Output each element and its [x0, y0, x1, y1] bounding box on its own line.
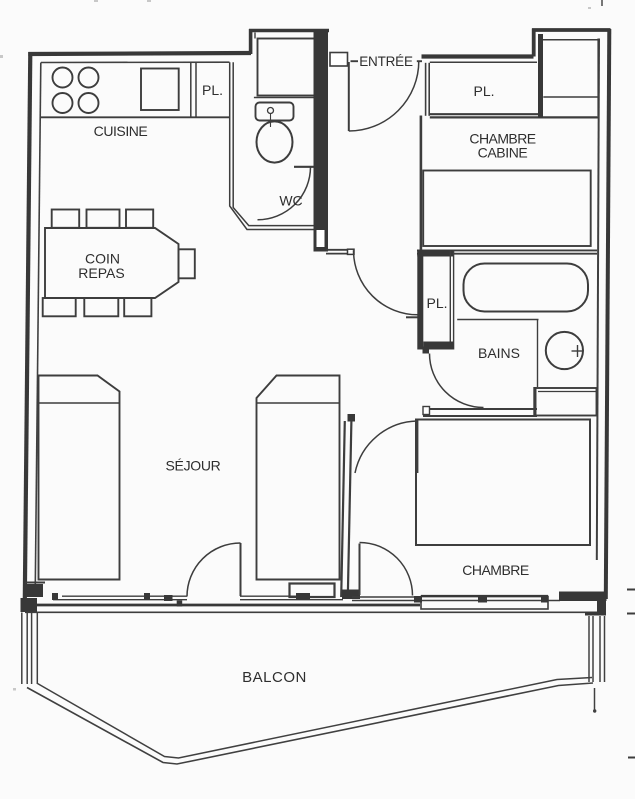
svg-text:PL.: PL.: [426, 295, 447, 311]
svg-text:SÉJOUR: SÉJOUR: [166, 458, 221, 474]
svg-text:REPAS: REPAS: [78, 265, 124, 281]
svg-text:PL.: PL.: [473, 83, 494, 99]
svg-text:ENTRÉE: ENTRÉE: [359, 54, 413, 69]
svg-text:WC: WC: [279, 192, 302, 208]
svg-text:PL.: PL.: [202, 82, 223, 98]
svg-text:CHAMBRE: CHAMBRE: [462, 562, 529, 578]
svg-text:BAINS: BAINS: [478, 345, 520, 361]
svg-text:BALCON: BALCON: [242, 669, 307, 686]
svg-text:CABINE: CABINE: [478, 145, 528, 161]
svg-text:CUISINE: CUISINE: [94, 123, 148, 139]
